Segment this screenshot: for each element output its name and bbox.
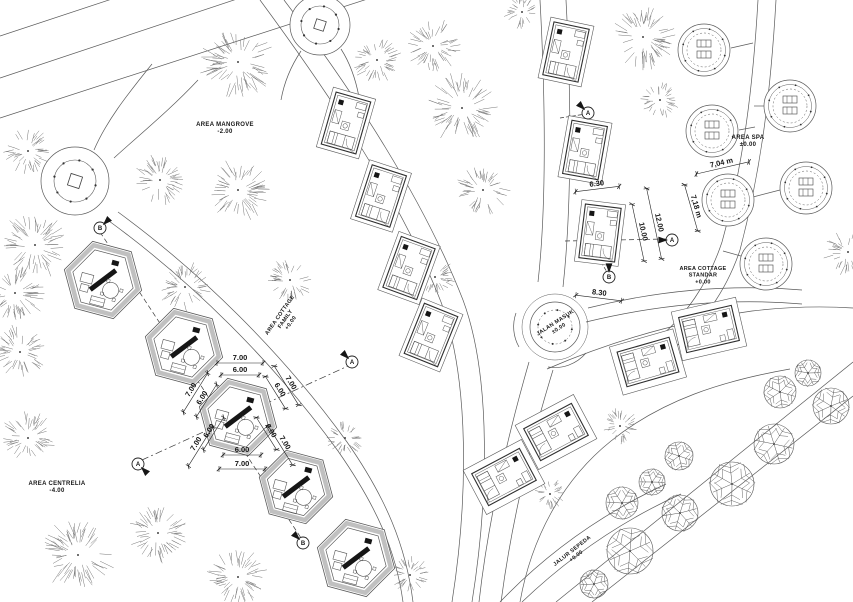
std-cottage xyxy=(350,160,411,233)
path-line xyxy=(522,494,681,602)
tree-icon xyxy=(709,462,755,506)
dimension-label: 12.00 xyxy=(653,212,666,232)
std-cottage xyxy=(609,329,686,395)
section-arrow-icon xyxy=(576,101,585,110)
section-letter: B xyxy=(301,541,306,547)
section-arrow-icon xyxy=(141,467,150,476)
tree-icon xyxy=(137,155,184,205)
path-line xyxy=(94,64,152,150)
tree-icon xyxy=(207,550,267,602)
area-label-line: ±0.00 xyxy=(740,142,757,148)
path-line xyxy=(281,51,301,100)
tree-icon xyxy=(3,130,49,174)
hex-cottage xyxy=(259,450,332,523)
dimension-label: 7.00 xyxy=(233,353,248,362)
dimension-label: 10.00 xyxy=(637,221,650,241)
area-label-line: STANDAR xyxy=(689,273,718,279)
tree-icon xyxy=(615,7,675,70)
plaza-gazebo xyxy=(290,0,350,55)
path-line xyxy=(538,0,544,282)
tree-icon xyxy=(3,411,54,457)
tree-icon xyxy=(606,528,654,574)
dimension-label: 7.00 xyxy=(235,459,250,468)
tree-icon xyxy=(408,20,460,71)
jalur-sepeda-label: JALUR SEPEDA+0.00 xyxy=(552,535,596,573)
tree-icon xyxy=(504,0,535,29)
area-mangrove-label: AREA MANGROVE-2.00 xyxy=(196,122,254,135)
std-cottage xyxy=(671,297,747,361)
section-letter: A xyxy=(350,360,355,366)
tree-icon xyxy=(4,216,64,276)
area-label-line: AREA CENTRELIA xyxy=(29,481,86,487)
area-label-line: AREA MANGROVE xyxy=(196,122,254,128)
dimension-label: 7.00 xyxy=(188,435,203,452)
tree-icon xyxy=(130,507,185,563)
std-cottage xyxy=(316,87,375,159)
tree-icon xyxy=(162,262,211,311)
hex-cottage xyxy=(145,308,222,385)
tree-icon xyxy=(824,233,853,275)
dimension-label: 6.00 xyxy=(235,445,250,454)
dimension: 10.00 xyxy=(629,200,655,264)
section-letter: B xyxy=(607,275,612,281)
section-marker: B xyxy=(603,263,615,283)
area-cottage-standar-label: AREA COTTAGESTANDAR+0.00 xyxy=(680,266,727,285)
std-cottage xyxy=(399,298,463,372)
tree-icon xyxy=(606,486,638,520)
path-line xyxy=(556,362,853,602)
dimension-label: 6.00 xyxy=(233,365,248,374)
tree-icon xyxy=(394,556,428,591)
area-centrelia-label: AREA CENTRELIA-4.00 xyxy=(29,481,86,494)
area-label-line: -2.00 xyxy=(217,129,233,135)
tree-icon xyxy=(0,325,44,377)
std-cottage xyxy=(558,116,612,185)
path-line xyxy=(731,43,753,48)
spa-cabana xyxy=(740,238,792,290)
section-arrow-icon xyxy=(103,216,112,225)
std-cottage xyxy=(538,17,594,87)
section-marker: B xyxy=(291,531,309,549)
spa-cabana xyxy=(686,105,738,157)
path-line xyxy=(753,190,780,197)
path-line xyxy=(514,313,519,347)
tree-icon xyxy=(662,494,699,531)
tree-icon xyxy=(212,161,270,220)
section-letter: A xyxy=(136,462,141,468)
dimension: 12.00 xyxy=(643,184,672,261)
area-spa-label: AREA SPA±0.00 xyxy=(732,135,765,148)
tree-icon xyxy=(639,468,665,495)
tree-icon xyxy=(664,442,693,471)
tree-icon xyxy=(458,168,511,215)
dimension-label: 7,04 m xyxy=(709,155,734,169)
dimension: 7.00 xyxy=(217,459,267,472)
spa-cabana xyxy=(780,162,832,214)
tree-icon xyxy=(429,73,498,138)
path-line xyxy=(0,0,118,36)
spa-cabana xyxy=(702,174,754,226)
tree-icon xyxy=(0,267,44,320)
dimension-label: 7.00 xyxy=(277,434,292,451)
tree-icon xyxy=(45,522,114,587)
spa-cabana xyxy=(678,24,730,76)
section-arrow-icon xyxy=(291,531,300,540)
tree-icon xyxy=(812,388,850,424)
section-letter: A xyxy=(670,238,675,244)
std-cottage xyxy=(574,200,625,267)
hex-cottage xyxy=(64,241,141,318)
section-marker: A xyxy=(658,234,678,246)
section-marker: A xyxy=(576,101,594,119)
path-line xyxy=(114,80,198,158)
spa-cabana xyxy=(764,80,816,132)
tree-icon xyxy=(763,376,796,408)
dimension: 7,04 m xyxy=(692,152,752,178)
section-letter: B xyxy=(98,226,103,232)
buildings-layer xyxy=(64,17,832,597)
site-plan-drawing: 7.006.007.006.007.006.006.007.006.007.00… xyxy=(0,0,853,602)
path-line xyxy=(0,0,252,78)
section-arrow-icon xyxy=(340,350,349,359)
section-marker: B xyxy=(94,216,112,234)
section-marker: A xyxy=(132,458,150,476)
dimension: 6.00 xyxy=(219,365,261,378)
area-label-line: AREA SPA xyxy=(732,135,765,141)
section-marker: A xyxy=(340,350,358,368)
tree-icon xyxy=(200,33,271,97)
area-label-line: +0.00 xyxy=(695,279,710,285)
tree-icon xyxy=(795,359,821,386)
std-cottage xyxy=(378,231,441,304)
area-cottage-family-label: AREA COTTAGEFAMILY+0.00 xyxy=(264,294,307,344)
dimension-label: 8.30 xyxy=(592,287,608,298)
site-plan-page: 7.006.007.006.007.006.006.007.006.007.00… xyxy=(0,0,853,602)
plaza-gazebo xyxy=(41,147,109,215)
section-letter: A xyxy=(586,111,591,117)
tree-icon xyxy=(641,83,678,118)
area-label-line: -4.00 xyxy=(49,488,65,494)
dimension-label: 6.30 xyxy=(589,178,605,189)
hex-cottage xyxy=(317,519,394,596)
area-label-line: AREA COTTAGE xyxy=(680,266,727,272)
tree-icon xyxy=(580,569,608,598)
tree-icon xyxy=(354,40,400,81)
path-line xyxy=(739,127,755,130)
